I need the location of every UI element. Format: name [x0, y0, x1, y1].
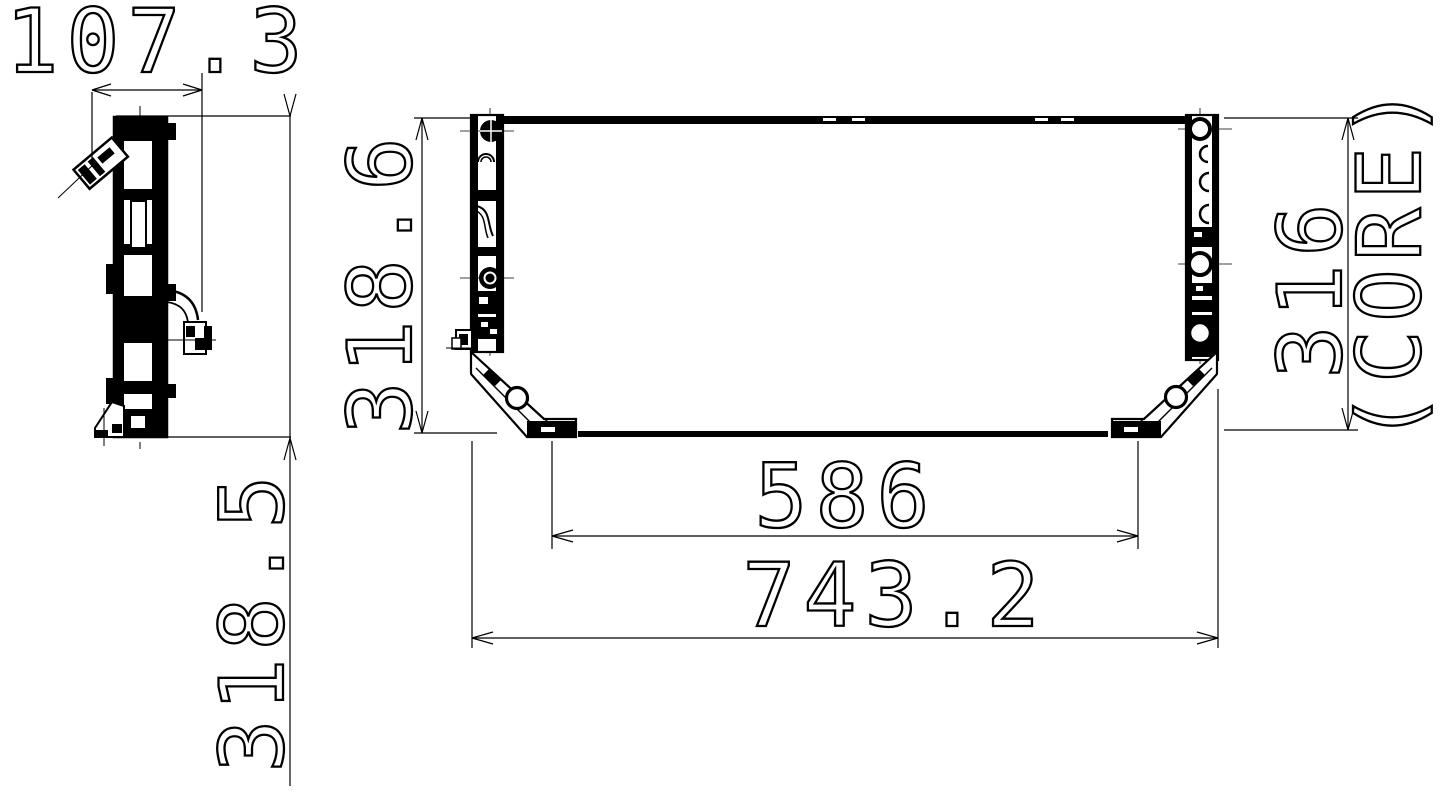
front-top-tube: [502, 116, 1186, 124]
front-bottom-tube: [578, 431, 1108, 437]
front-view: [446, 108, 1232, 437]
dim-text-overall-width: 743.2: [743, 552, 1048, 640]
side-view: [58, 106, 216, 449]
front-left-bracket: [471, 352, 576, 437]
dim-text-side-depth: 107.3: [6, 0, 311, 86]
front-right-tank: [1178, 108, 1232, 368]
dim-text-side-height: 318.5: [209, 468, 297, 773]
dim-text-mount-span: 586: [755, 453, 938, 541]
drawing-sheet: 107.3 318.5 318.6 586 743.2 316 (CORE): [0, 0, 1440, 809]
side-bottom-foot: [95, 402, 124, 446]
dim-text-front-height: 318.6: [337, 130, 425, 435]
front-right-bracket: [1112, 352, 1217, 437]
core-label: (CORE): [1346, 78, 1434, 444]
front-left-tank: [446, 108, 514, 358]
